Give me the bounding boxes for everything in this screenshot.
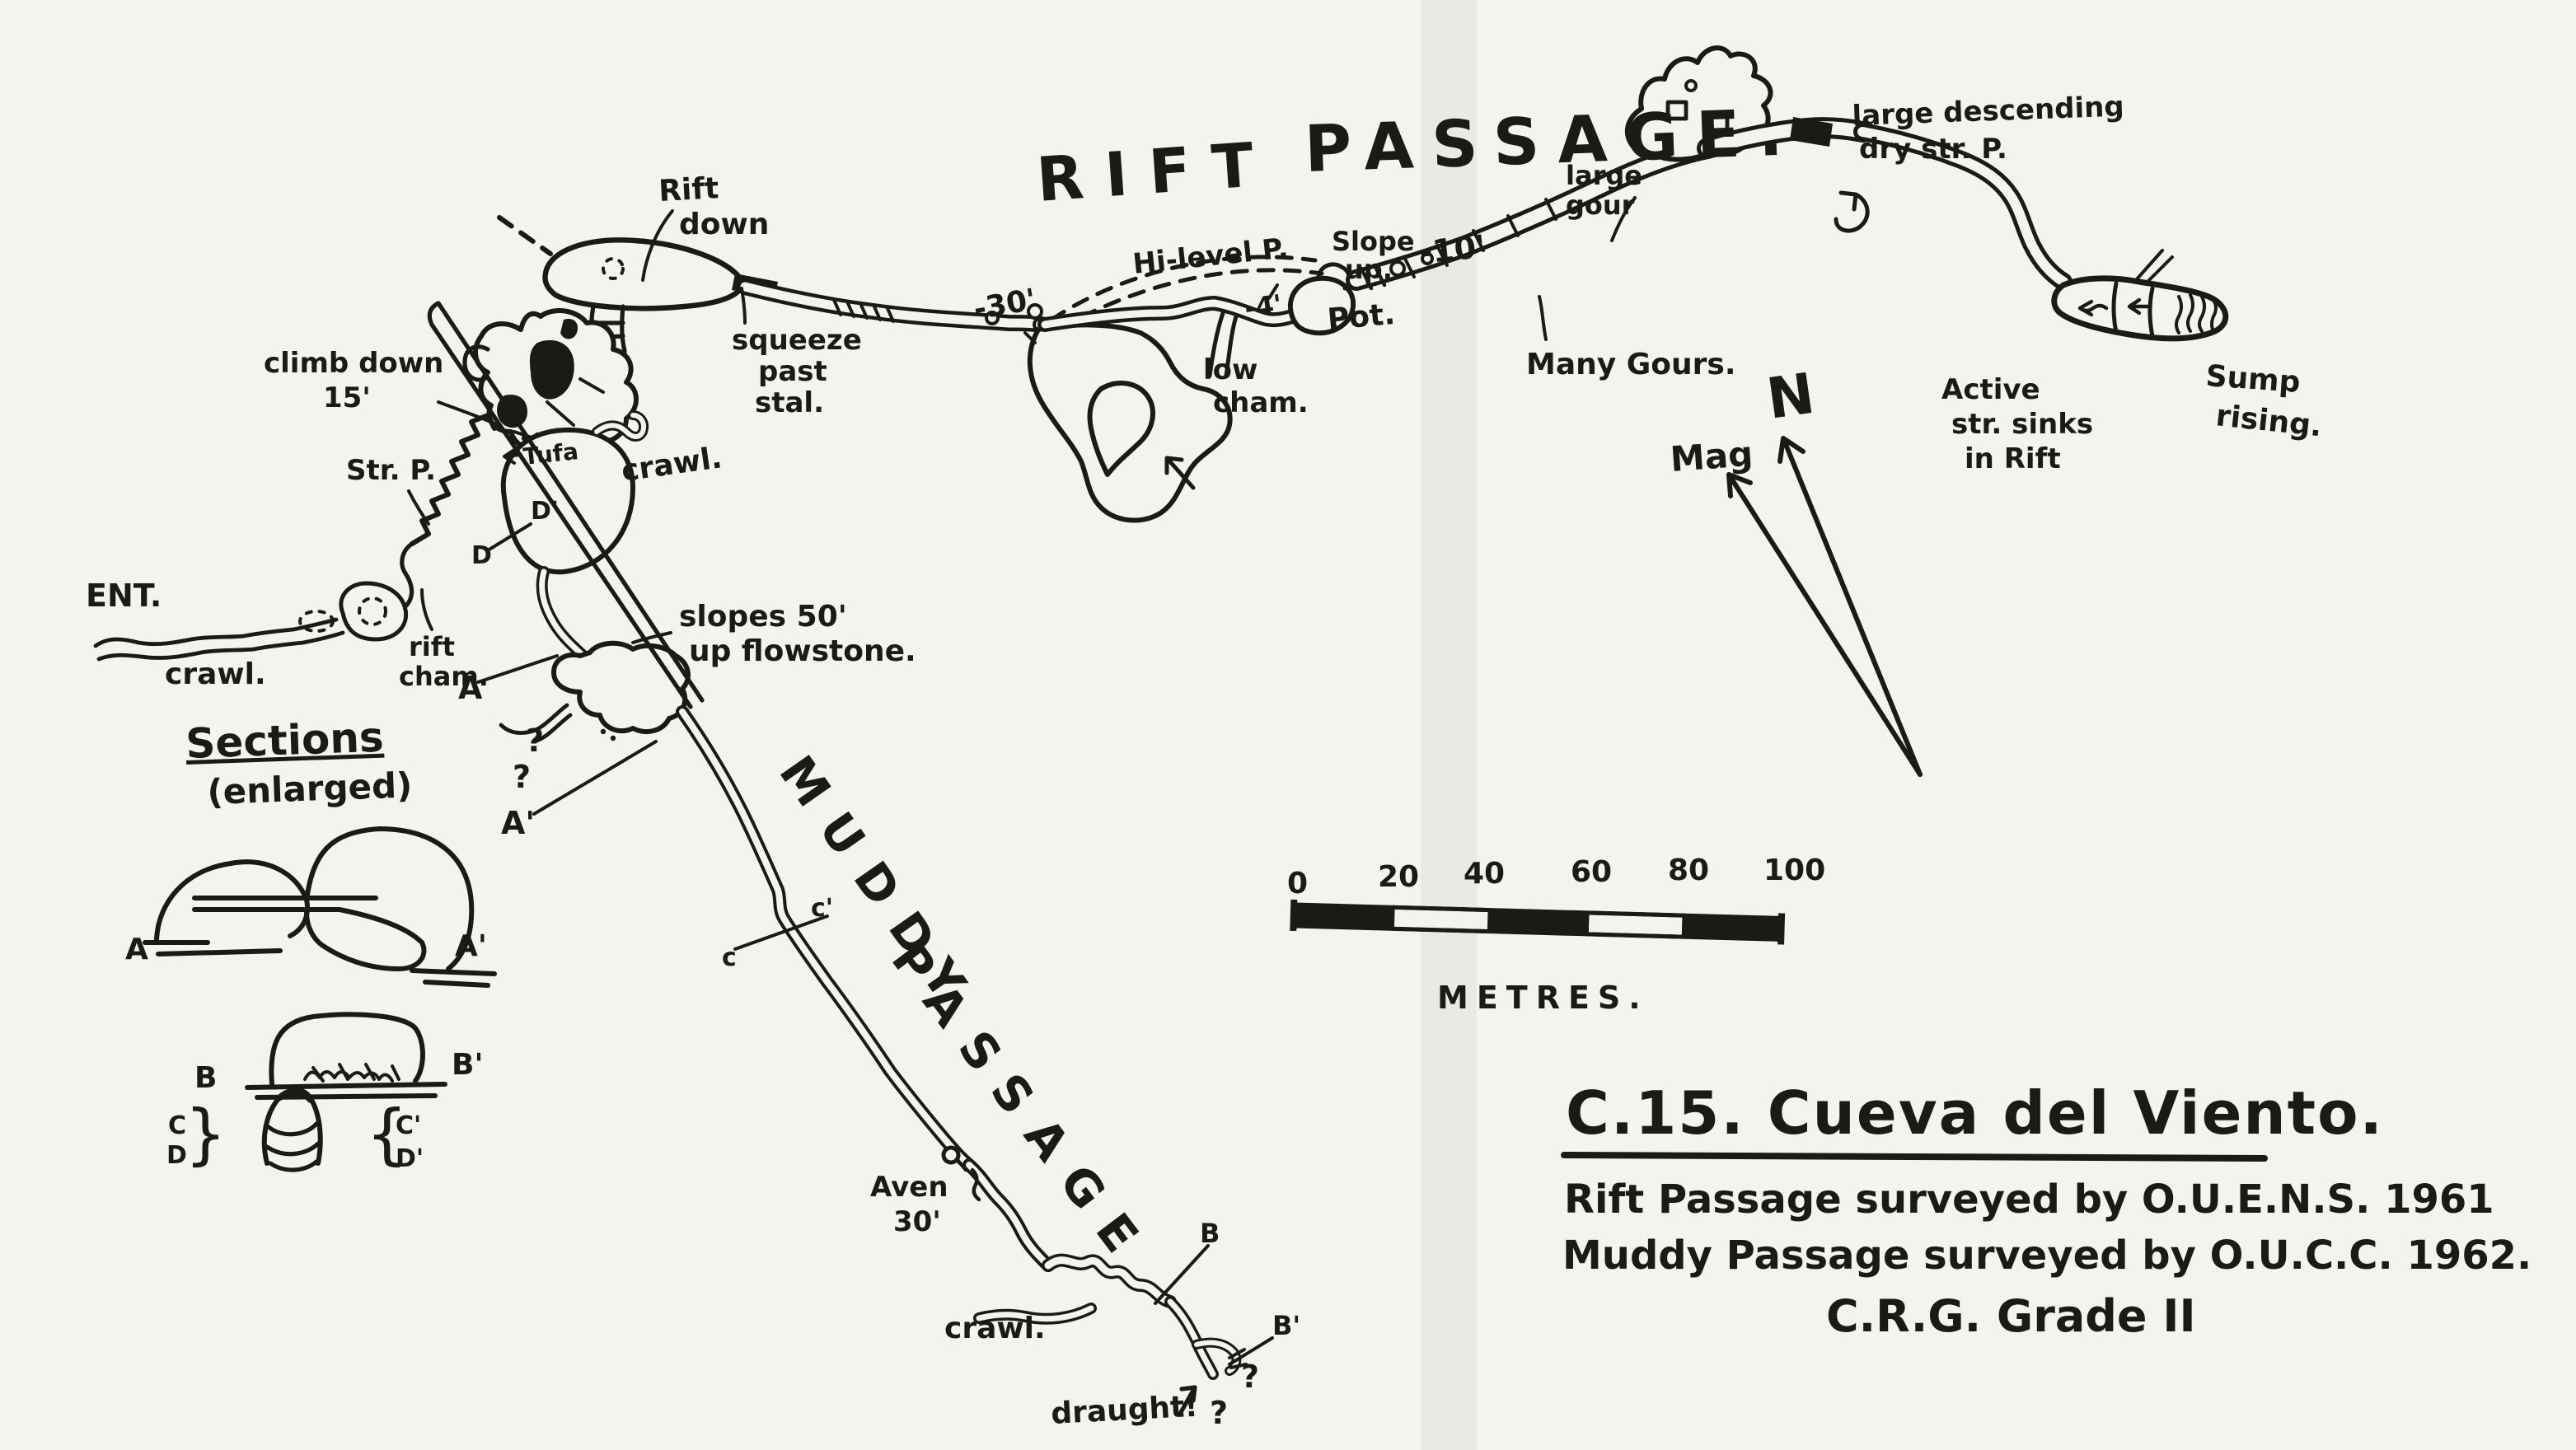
true-north-arrow-icon bbox=[1780, 438, 1920, 774]
rift-cham-link bbox=[402, 544, 412, 606]
label-active-3: in Rift bbox=[1965, 442, 2061, 475]
legend-b2: B' bbox=[452, 1048, 483, 1082]
cave-survey-map: RIFT PASSAGE. Rift down squeeze past sta… bbox=[0, 0, 2576, 1450]
label-rift-cham-1: rift bbox=[409, 631, 455, 662]
marker-d2: D' bbox=[531, 497, 559, 526]
label-muddy-crawl: crawl. bbox=[944, 1312, 1046, 1345]
label-aven-1: Aven bbox=[870, 1171, 948, 1204]
label-slopes-2: up flowstone. bbox=[689, 634, 916, 668]
marker-b2: B' bbox=[1272, 1310, 1300, 1341]
label-ent: ENT. bbox=[86, 578, 162, 614]
entrance-chamber bbox=[341, 583, 406, 639]
side-spur bbox=[2136, 250, 2172, 283]
label-q-a1: ? bbox=[526, 723, 544, 759]
sections-subtitle: (enlarged) bbox=[207, 765, 413, 812]
title-rift: RIFT bbox=[1034, 129, 1277, 216]
section-a-left-lobe bbox=[157, 862, 307, 939]
title-passage: PASSAGE. bbox=[1304, 96, 1802, 187]
section-a-leader bbox=[478, 656, 557, 682]
label-large-gour-2: gour bbox=[1566, 189, 1635, 221]
label-squeeze-3: stal. bbox=[755, 386, 824, 419]
map-credit-1: Rift Passage surveyed by O.U.E.N.S. 1961 bbox=[1564, 1176, 2494, 1223]
legend-c: C bbox=[168, 1111, 186, 1140]
label-squeeze-1: squeeze bbox=[732, 324, 862, 357]
map-grade: C.R.G. Grade II bbox=[1826, 1290, 2196, 1342]
scale-bar bbox=[1290, 900, 1785, 945]
scale-20: 20 bbox=[1378, 860, 1419, 894]
label-dry-1: large descending bbox=[1852, 90, 2124, 132]
label-many-gours: Many Gours. bbox=[1526, 348, 1736, 381]
map-title-underline bbox=[1564, 1155, 2265, 1158]
marker-a: A bbox=[458, 670, 483, 706]
label-ent-crawl: crawl. bbox=[165, 657, 266, 691]
label-active-2: str. sinks bbox=[1951, 408, 2093, 441]
label-q1: ? bbox=[1210, 1395, 1228, 1431]
label-dry-2: dry str. P. bbox=[1859, 133, 2007, 166]
label-sump-2: rising. bbox=[2214, 399, 2324, 443]
gour-pool bbox=[1391, 262, 1404, 275]
section-b-floor bbox=[247, 1084, 445, 1097]
legend-c2: C' bbox=[396, 1111, 421, 1140]
label-slopes-1: slopes 50' bbox=[679, 600, 847, 634]
legend-brace-left: } bbox=[185, 1096, 227, 1172]
label-str-p: Str. P. bbox=[346, 454, 436, 487]
marker-b: B bbox=[1200, 1218, 1220, 1249]
north-mag: Mag bbox=[1669, 433, 1754, 479]
label-q2: ? bbox=[1241, 1359, 1259, 1395]
many-gours-leader bbox=[1539, 297, 1546, 339]
sections-title: Sections bbox=[185, 713, 384, 768]
scan-seam bbox=[1421, 0, 1477, 1450]
label-mid-crawl: crawl. bbox=[620, 441, 724, 489]
label-climb-1: climb down bbox=[264, 347, 443, 380]
water-flow-curl-icon bbox=[1836, 193, 1867, 231]
label-rift-down-1: Rift bbox=[658, 171, 719, 208]
label-tufa: Tufa bbox=[522, 437, 579, 470]
label-slope-up-2: up. bbox=[1345, 254, 1393, 285]
label-low-cham-1: low bbox=[1203, 353, 1258, 386]
label-low-cham-2: cham. bbox=[1213, 386, 1309, 419]
section-b-cobbles bbox=[305, 1064, 399, 1081]
map-title: C.15. Cueva del Viento. bbox=[1566, 1078, 2384, 1148]
marker-d: D bbox=[471, 541, 492, 570]
label-squeeze-2: past bbox=[758, 355, 827, 388]
str-p-leader bbox=[409, 491, 429, 524]
label-large-gour-1: large bbox=[1566, 160, 1642, 191]
scale-60: 60 bbox=[1571, 855, 1612, 889]
section-a-tube bbox=[194, 898, 376, 910]
dot-2 bbox=[535, 433, 540, 437]
scale-80: 80 bbox=[1668, 854, 1709, 887]
dot-4 bbox=[611, 736, 616, 741]
scale-40: 40 bbox=[1464, 857, 1505, 891]
label-sump-1: Sump bbox=[2204, 359, 2301, 400]
label-slope-up-1: Slope bbox=[1332, 226, 1415, 257]
scale-unit: METRES. bbox=[1437, 980, 1649, 1016]
label-climb-2: 15' bbox=[323, 381, 371, 414]
label-depth10: -10' bbox=[1417, 228, 1487, 271]
scale-0: 0 bbox=[1287, 867, 1308, 900]
dashed-passage-continuation bbox=[499, 217, 550, 254]
section-a-lower-duct bbox=[307, 910, 424, 969]
marker-c: c bbox=[722, 943, 737, 972]
label-pot: Pot. bbox=[1326, 297, 1396, 337]
map-credit-2: Muddy Passage surveyed by O.U.C.C. 1962. bbox=[1562, 1232, 2532, 1279]
rift-cham-leader bbox=[422, 590, 432, 629]
section-a-floorlines bbox=[145, 942, 494, 985]
label-q-a2: ? bbox=[513, 759, 531, 795]
section-a2-leader bbox=[534, 741, 656, 814]
north-arrows bbox=[1729, 438, 1920, 774]
marker-a2: A' bbox=[501, 805, 535, 841]
label-draught: draught! bbox=[1050, 1390, 1198, 1431]
label-rift-down-2: down bbox=[679, 208, 769, 241]
legend-a2: A' bbox=[455, 929, 487, 963]
scale-100: 100 bbox=[1763, 854, 1825, 887]
legend-b: B bbox=[194, 1061, 217, 1095]
label-depth4: -4' bbox=[1243, 288, 1284, 325]
north-n: N bbox=[1763, 362, 1818, 433]
gour-basin-3 bbox=[1686, 81, 1696, 91]
marker-c2: c' bbox=[811, 894, 833, 923]
label-aven-2: 30' bbox=[893, 1205, 941, 1238]
section-b-leader bbox=[1155, 1246, 1208, 1303]
legend-a: A bbox=[125, 933, 148, 966]
mag-north-arrow-icon bbox=[1729, 475, 1920, 774]
legend-d2: D' bbox=[396, 1144, 424, 1173]
label-active-1: Active bbox=[1941, 373, 2040, 406]
dot-3 bbox=[601, 729, 606, 734]
a-junction-chamber bbox=[554, 643, 688, 732]
